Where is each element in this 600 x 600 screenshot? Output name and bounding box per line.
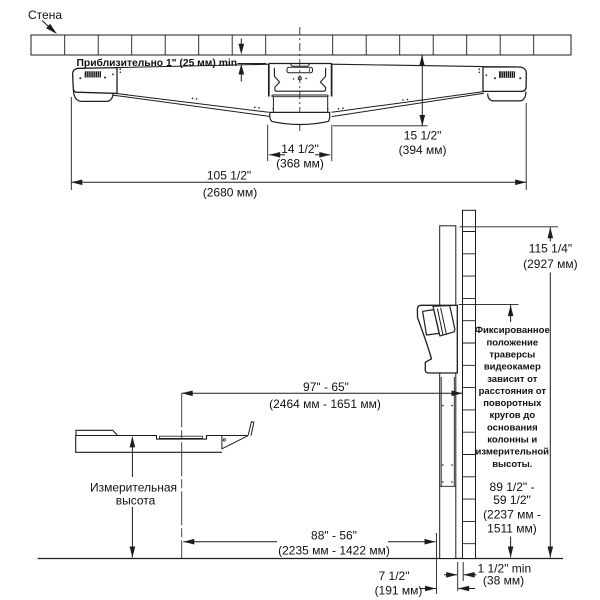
svg-text:измерительной: измерительной [476, 447, 550, 458]
svg-text:15 1/2": 15 1/2" [404, 129, 442, 143]
svg-text:Фиксированное: Фиксированное [475, 325, 550, 336]
svg-text:115 1/4": 115 1/4" [529, 242, 572, 256]
svg-text:видеокамер: видеокамер [484, 362, 541, 373]
svg-text:(2680 мм): (2680 мм) [203, 186, 258, 200]
svg-text:колонны и: колонны и [487, 435, 537, 446]
svg-text:поворотных: поворотных [483, 398, 542, 409]
svg-text:105 1/2": 105 1/2" [207, 169, 251, 183]
svg-text:высоты.: высоты. [492, 459, 532, 470]
svg-text:97" - 65": 97" - 65" [303, 380, 349, 394]
svg-text:(368 мм): (368 мм) [276, 157, 324, 171]
svg-text:Измерительная: Измерительная [90, 480, 177, 494]
svg-text:88" - 56": 88" - 56" [311, 528, 357, 542]
svg-text:кругов до: кругов до [489, 410, 535, 421]
svg-text:89 1/2" -: 89 1/2" - [490, 480, 535, 494]
svg-text:(2237 мм -: (2237 мм - [483, 508, 541, 522]
svg-text:(2927 мм): (2927 мм) [523, 257, 578, 271]
svg-text:(2464 мм - 1651 мм): (2464 мм - 1651 мм) [269, 397, 381, 411]
svg-text:59 1/2": 59 1/2" [493, 493, 531, 507]
svg-text:основания: основания [487, 422, 538, 433]
svg-text:(2235 мм - 1422 мм): (2235 мм - 1422 мм) [278, 543, 390, 557]
svg-text:зависит от: зависит от [487, 374, 538, 385]
svg-text:(38 мм): (38 мм) [483, 574, 524, 588]
svg-text:расстояния от: расстояния от [479, 386, 547, 397]
svg-text:(191 мм): (191 мм) [375, 584, 423, 598]
svg-text:положение: положение [486, 337, 538, 348]
svg-text:Стена: Стена [28, 8, 62, 22]
svg-text:высота: высота [116, 493, 156, 507]
svg-text:(394 мм): (394 мм) [399, 143, 447, 157]
svg-text:14 1/2": 14 1/2" [281, 142, 319, 156]
svg-text:1511 мм): 1511 мм) [487, 522, 537, 536]
svg-text:траверсы: траверсы [489, 350, 535, 361]
svg-text:7 1/2": 7 1/2" [379, 569, 410, 583]
